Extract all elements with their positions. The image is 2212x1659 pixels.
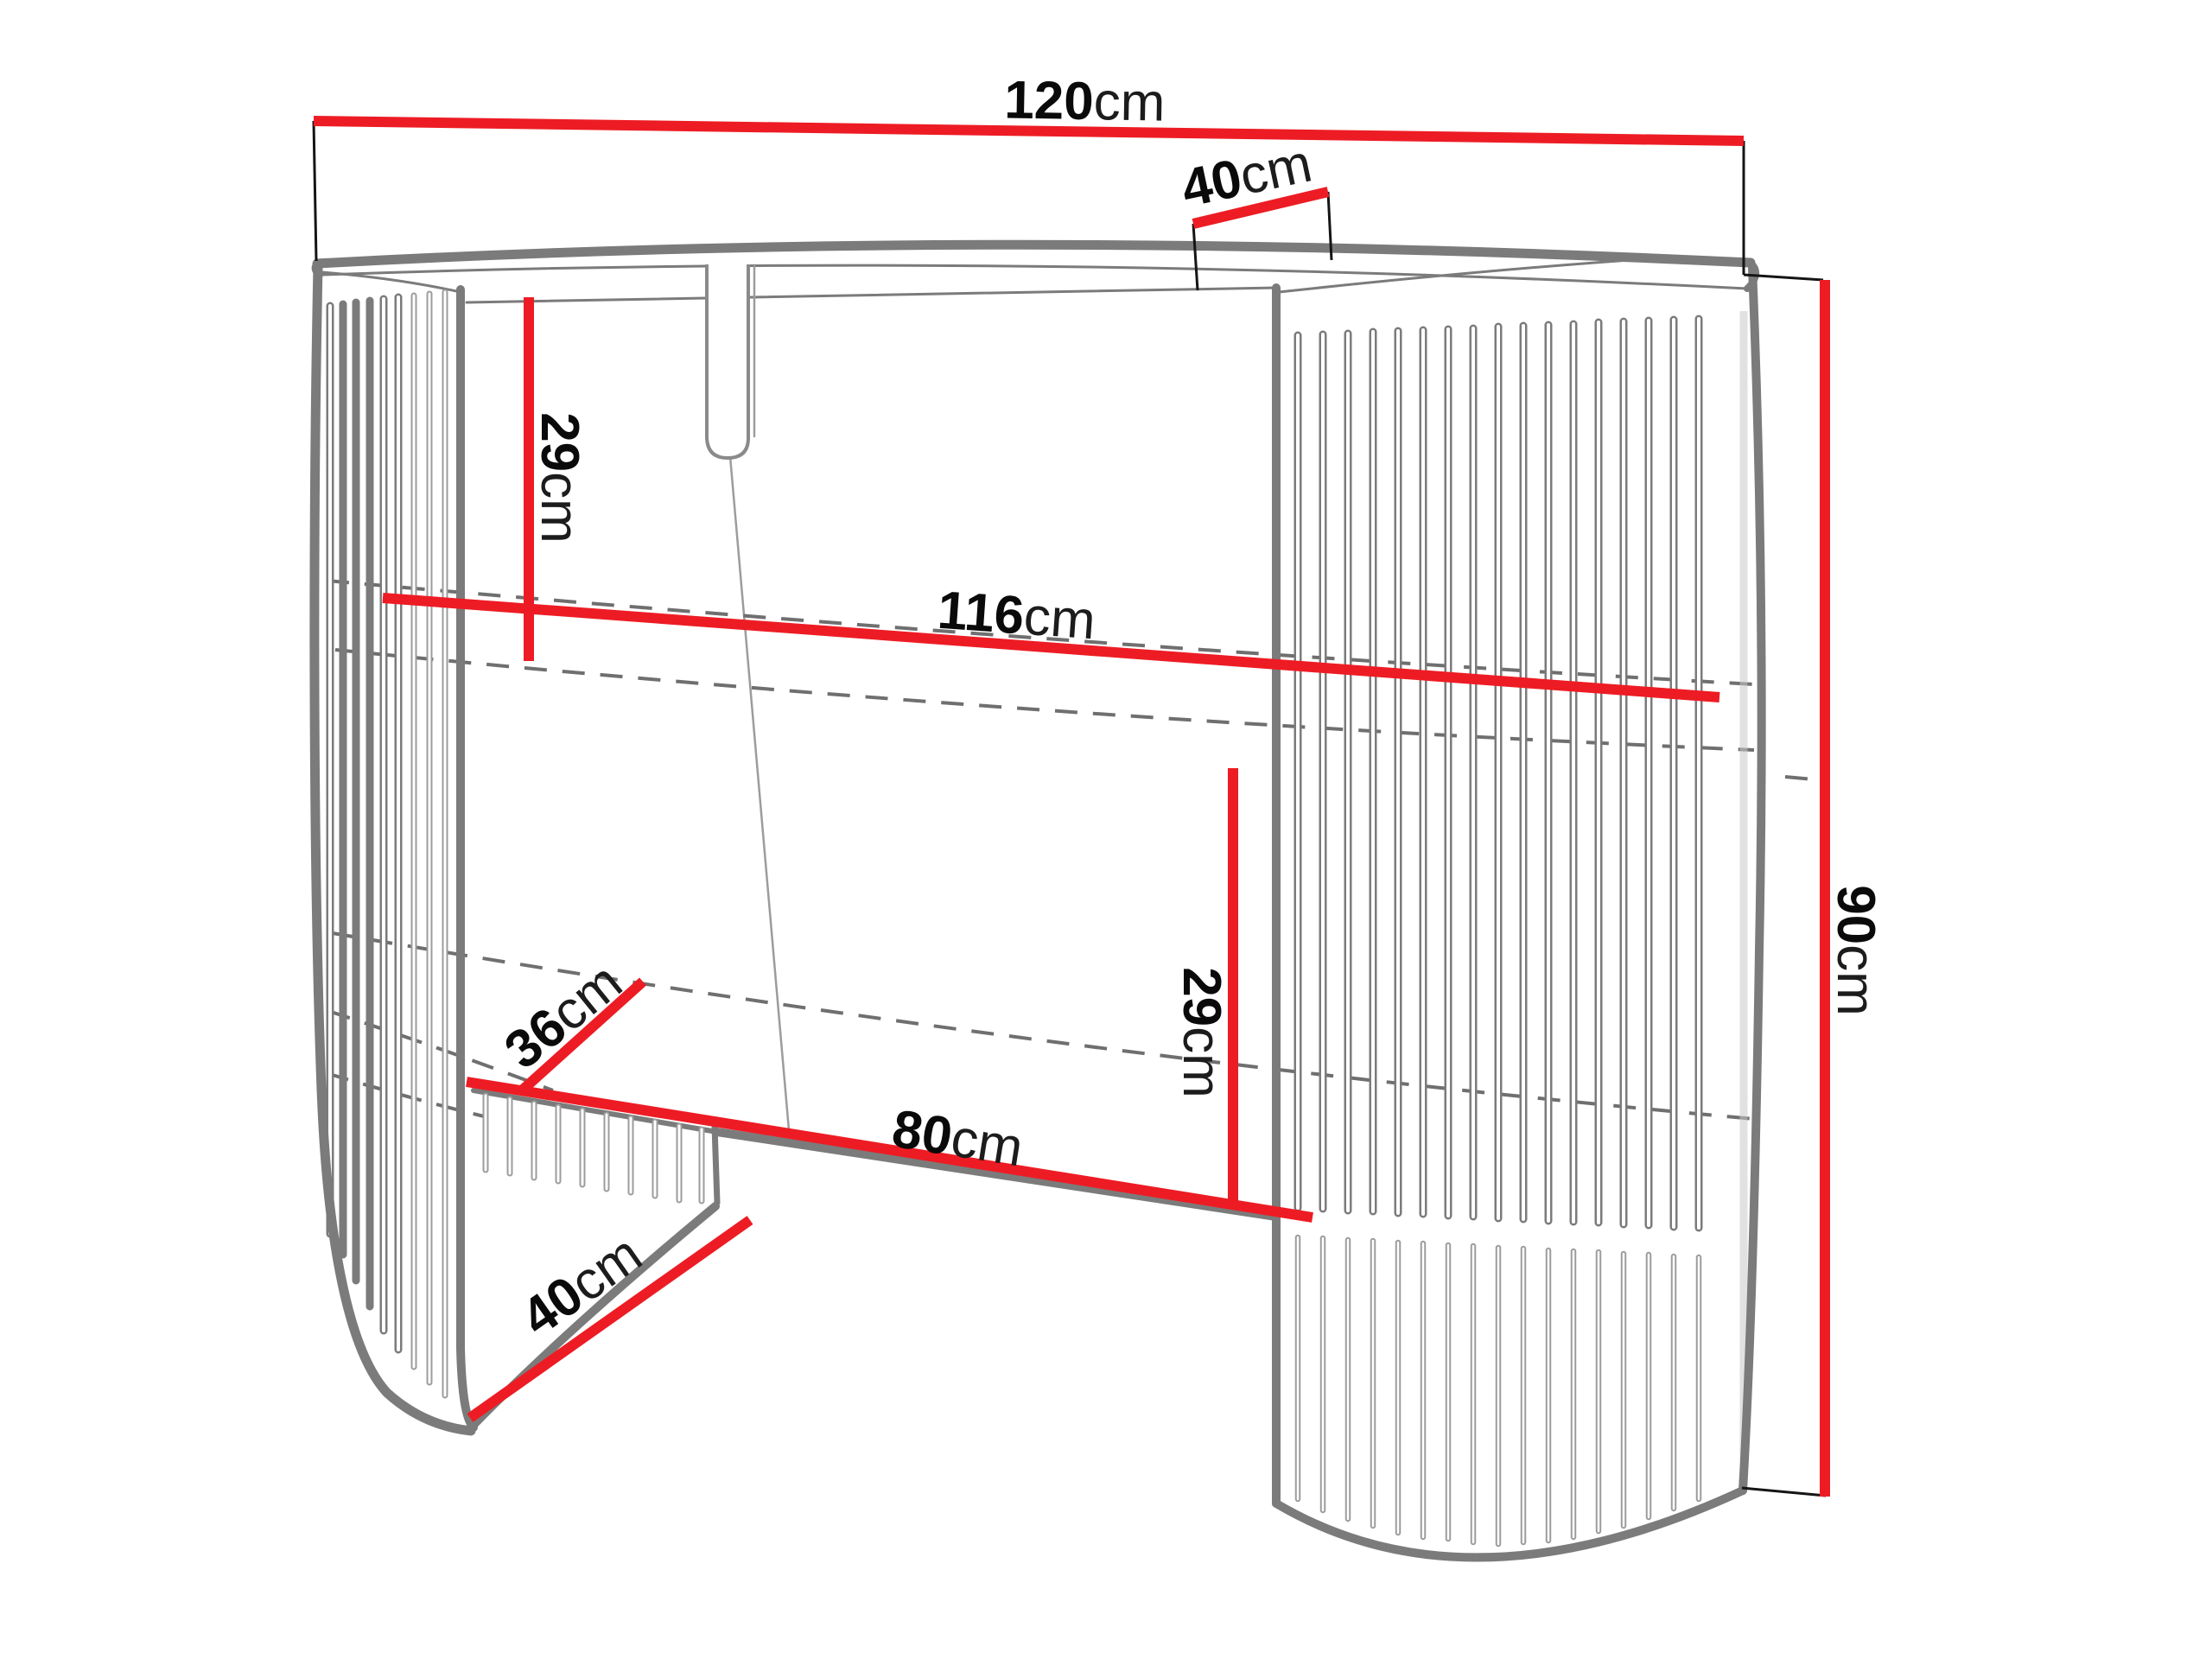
dim-height-label: 90cm: [1826, 885, 1885, 1016]
tabletop-back-edge: [317, 245, 1751, 264]
dim-opening-width-label: 80cm: [888, 1099, 1027, 1179]
handle-slot: [707, 264, 754, 458]
console-table-drawing: 120cm 40cm 29cm 116cm 36cm 80cm 29cm 40c…: [0, 0, 2212, 1659]
left-pedestal-front-edge: [461, 289, 474, 1427]
right-pedestal: [1276, 257, 1762, 1557]
dim-top-width-label: 120cm: [1004, 70, 1166, 132]
dim-shelf-width-label: 116cm: [936, 581, 1097, 652]
dimension-diagram: 120cm 40cm 29cm 116cm 36cm 80cm 29cm 40c…: [0, 0, 2212, 1659]
ext-90-bottom: [1742, 1488, 1826, 1496]
ext-120-left: [314, 121, 316, 261]
right-pedestal-top-edge: [1279, 257, 1668, 292]
opening-right-cap: [715, 1126, 717, 1203]
door-seam: [730, 456, 789, 1130]
door-top-edge: [467, 288, 1277, 302]
left-pedestal-top-edge: [321, 272, 461, 292]
right-side-dash: [1785, 777, 1823, 780]
dim-top-to-shelf-label: 29cm: [530, 412, 589, 543]
handle-slot-outline: [707, 264, 748, 458]
ext-40top-left: [1193, 224, 1198, 290]
left-pedestal: [315, 266, 474, 1431]
dim-shelf-to-base-label: 29cm: [1172, 967, 1231, 1098]
upper-shelf-front-dashed: [335, 650, 1754, 750]
dim-top-depth-label: 40cm: [1176, 133, 1317, 219]
dim-pedestal-depth-label: 40cm: [511, 1224, 652, 1347]
